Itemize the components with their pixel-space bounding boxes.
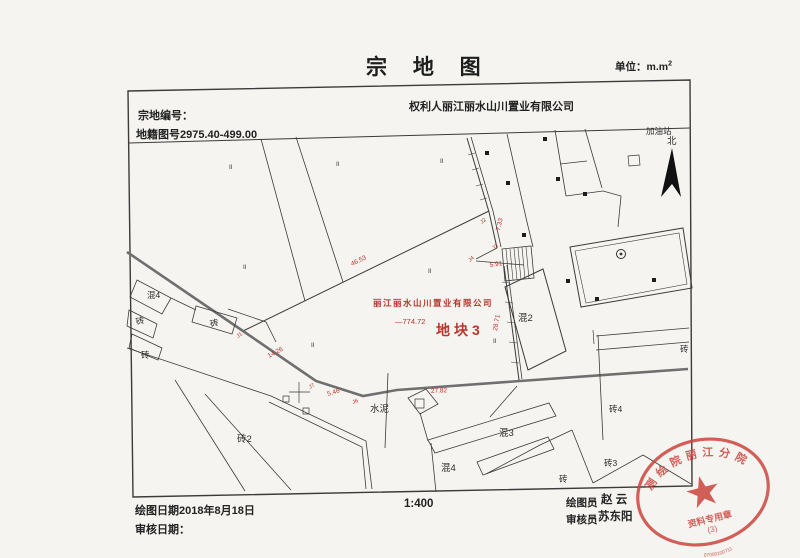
map-annotation-label: 砖	[135, 315, 147, 327]
map-line	[570, 228, 692, 307]
boundary-annotation-label: J4	[467, 255, 475, 263]
boundary-annotation-label: 5.91	[489, 260, 503, 269]
map-line	[510, 249, 513, 280]
reviewer-label: 审核员	[566, 512, 598, 527]
boundary-annotation-label: 28.71	[492, 314, 502, 332]
land-class-marker: II	[428, 268, 432, 275]
map-point-symbol	[595, 297, 599, 301]
map-line	[572, 430, 593, 483]
map-line	[560, 161, 587, 164]
map-line	[477, 437, 554, 475]
map-line	[490, 386, 517, 417]
map-annotation-label: 北	[667, 136, 677, 147]
red-seal: 测绘院丽江分院★资料专用章(3)07000100711	[626, 426, 783, 558]
drawing-date: 绘图日期2018年8月18日	[135, 502, 255, 518]
map-line	[428, 403, 556, 453]
boundary-annotation-label: 丽江丽水山川置业有限公司	[373, 298, 493, 308]
boundary-annotation-label: 27.82	[431, 387, 448, 395]
reviewer-name: 苏东阳	[598, 508, 633, 524]
map-annotation-label: 砖	[141, 350, 150, 360]
map-line	[555, 130, 566, 196]
map-annotation-label: 砖4	[609, 404, 623, 414]
map-annotation-label: 混3	[499, 428, 514, 439]
map-annotation-label: 加油站	[646, 126, 672, 136]
map-line	[507, 134, 533, 247]
seal-serial-text: 07000100711	[702, 545, 734, 558]
map-line	[415, 399, 424, 408]
map-annotation-label: 混4	[441, 463, 456, 474]
well-symbol-dot	[620, 253, 623, 256]
map-line	[596, 328, 689, 336]
north-arrow-icon	[661, 148, 681, 197]
land-class-marker: II	[336, 161, 340, 168]
map-point-symbol	[485, 151, 489, 155]
map-annotation-label: 混2	[518, 313, 533, 324]
map-line	[243, 211, 489, 331]
map-line	[518, 248, 521, 280]
cadastral-map-drawing: 加油站北混4砖砖砖砖2水泥混2混3混4砖砖4砖砖346.537.33J2J3J4…	[0, 0, 800, 558]
map-line	[171, 298, 196, 310]
boundary-annotation-label: J7	[308, 383, 316, 391]
boundary-annotation-label: J2	[479, 217, 487, 225]
map-point-symbol	[522, 233, 526, 237]
map-annotation-label: 砖	[680, 344, 689, 354]
map-line	[420, 413, 428, 441]
land-class-marker: II	[229, 164, 233, 171]
boundary-annotation-label: J6	[352, 398, 360, 406]
map-line	[596, 342, 689, 350]
map-line	[628, 155, 640, 166]
seal-number-text: (3)	[706, 524, 718, 535]
map-point-symbol	[506, 181, 510, 185]
map-line	[505, 269, 566, 370]
boundary-annotation-label: J1	[236, 331, 244, 339]
map-point-symbol	[543, 137, 547, 141]
map-annotation-label: 砖2	[237, 433, 252, 445]
map-line	[476, 184, 483, 186]
map-point-symbol	[566, 279, 570, 283]
map-annotation-label: 砖	[209, 317, 220, 329]
review-date: 审核日期：	[135, 521, 190, 537]
map-line	[511, 362, 519, 363]
map-point-symbol	[583, 192, 587, 196]
map-line	[593, 330, 594, 344]
land-class-marker: II	[493, 338, 497, 345]
map-line	[303, 408, 309, 414]
map-line	[128, 80, 692, 497]
map-line	[480, 198, 487, 200]
map-line	[509, 342, 517, 343]
map-line	[593, 455, 643, 483]
map-line	[283, 396, 289, 402]
map-line	[506, 249, 509, 281]
map-line	[526, 247, 529, 279]
map-line	[585, 129, 602, 188]
map-annotation-label: 混4	[147, 290, 161, 300]
boundary-annotation-label: 7.33	[495, 217, 505, 231]
map-point-symbol	[556, 177, 560, 181]
map-scale: 1:400	[404, 498, 433, 510]
map-line	[175, 380, 245, 491]
map-line	[296, 137, 343, 282]
map-annotation-label: 砖	[559, 474, 568, 484]
map-line	[467, 138, 489, 212]
map-line	[522, 247, 525, 279]
map-point-symbol	[652, 278, 656, 282]
map-annotation-label: 砖3	[604, 458, 618, 468]
map-line	[129, 128, 690, 143]
boundary-annotation-label: 5.46	[326, 387, 341, 398]
map-line	[603, 191, 621, 227]
boundary-annotation-label: —774.72	[395, 317, 425, 326]
map-line	[269, 402, 366, 489]
map-line	[261, 139, 305, 301]
map-line	[598, 335, 603, 440]
map-annotation-label: 水泥	[370, 403, 390, 415]
boundary-annotation-label: 46.53	[350, 254, 368, 268]
drafter-label: 绘图员	[566, 495, 598, 510]
boundary-annotation-label: 地块3	[436, 322, 484, 338]
drafter-name: 赵 云	[601, 491, 627, 507]
land-class-marker: II	[440, 158, 444, 165]
land-class-marker: II	[311, 342, 315, 349]
map-line	[471, 137, 493, 211]
land-class-marker: II	[243, 264, 247, 271]
scanned-parcel-map-page: 宗 地 图 单位：m.m2 宗地编号： 地籍图号2975.40-499.00 权…	[0, 0, 800, 558]
